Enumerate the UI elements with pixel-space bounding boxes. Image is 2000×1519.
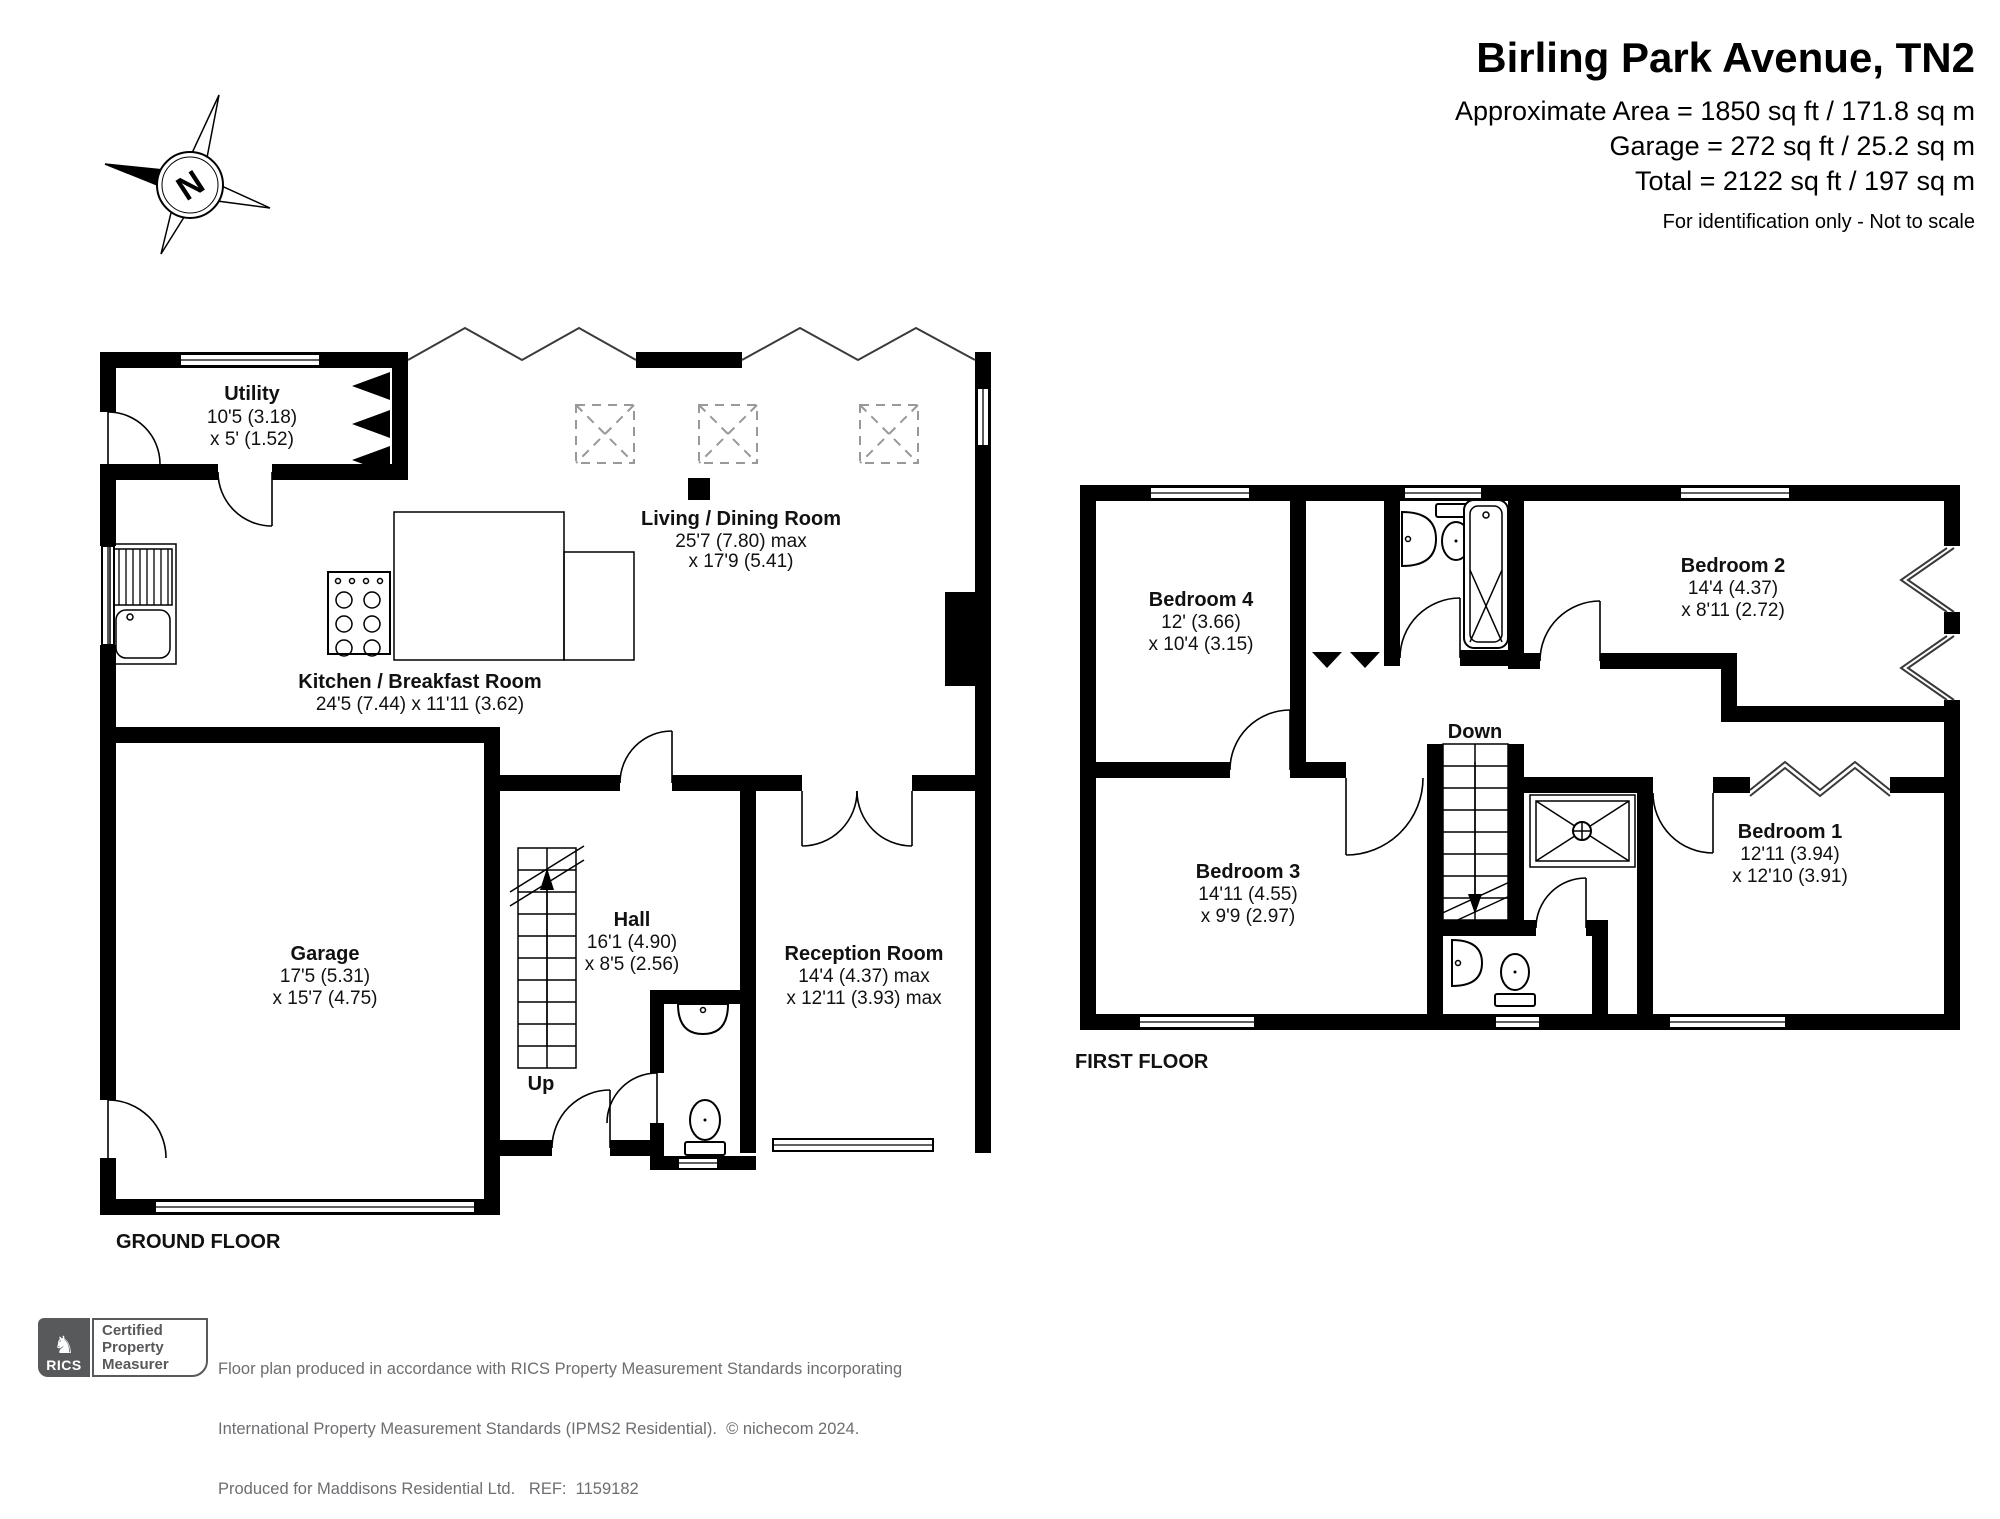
room-dim: x 8'11 (2.72) bbox=[1681, 600, 1785, 621]
room-dim: x 5' (1.52) bbox=[210, 429, 294, 450]
room-label-kitchen: Kitchen / Breakfast Room bbox=[298, 671, 541, 693]
area-summary: Approximate Area = 1850 sq ft / 171.8 sq… bbox=[1455, 94, 1975, 199]
room-label-bedroom2: Bedroom 2 bbox=[1681, 555, 1785, 577]
bay-window-icons bbox=[1750, 548, 1954, 796]
window-icon bbox=[1139, 1016, 1255, 1028]
page-title: Birling Park Avenue, TN2 bbox=[1455, 36, 1975, 80]
rics-wordmark: RICS bbox=[46, 1357, 81, 1377]
room-label-bedroom4: Bedroom 4 bbox=[1149, 589, 1254, 611]
airing-cupboard-icon bbox=[1530, 795, 1635, 867]
room-dim: x 8'5 (2.56) bbox=[585, 954, 679, 975]
stairs-down bbox=[1436, 744, 1514, 930]
kitchen-counter bbox=[394, 512, 634, 660]
cert-line: Measurer bbox=[102, 1356, 206, 1373]
garage-area: Garage = 272 sq ft / 25.2 sq m bbox=[1455, 129, 1975, 164]
folding-door-icon bbox=[352, 372, 390, 474]
window-icon bbox=[1669, 1016, 1786, 1028]
room-dim: 16'1 (4.90) bbox=[587, 932, 677, 953]
window-icon bbox=[1150, 487, 1250, 499]
window-icon bbox=[1495, 1016, 1540, 1028]
room-dim: 10'5 (3.18) bbox=[207, 407, 297, 428]
window-icon bbox=[773, 1139, 933, 1151]
window-icon bbox=[102, 546, 114, 645]
window-icon bbox=[1680, 487, 1790, 499]
ground-floor-doors bbox=[108, 372, 912, 1158]
first-floor-walls bbox=[1080, 485, 1960, 1030]
cert-line: Property bbox=[102, 1339, 206, 1356]
room-label-garage: Garage bbox=[291, 943, 360, 965]
room-label-bedroom3: Bedroom 3 bbox=[1196, 861, 1300, 883]
room-dim: 14'4 (4.37) max bbox=[798, 966, 930, 987]
approximate-area: Approximate Area = 1850 sq ft / 171.8 sq… bbox=[1455, 94, 1975, 129]
skylight-icons bbox=[576, 405, 918, 463]
first-floor-label: FIRST FLOOR bbox=[1075, 1051, 1209, 1073]
room-label-reception: Reception Room bbox=[785, 943, 944, 965]
bathtub-icon bbox=[1464, 500, 1508, 648]
stairs-down-label: Down bbox=[1448, 721, 1502, 743]
window-icon bbox=[180, 354, 320, 366]
room-dim: 24'5 (7.44) x 11'11 (3.62) bbox=[316, 694, 524, 715]
total-area: Total = 2122 sq ft / 197 sq m bbox=[1455, 164, 1975, 199]
room-dim: x 12'11 (3.93) max bbox=[786, 988, 942, 1009]
room-dim: x 17'9 (5.41) bbox=[688, 551, 793, 572]
disclaimer-line-3: Produced for Maddisons Residential Ltd. … bbox=[218, 1479, 902, 1499]
certified-property-measurer-badge: Certified Property Measurer bbox=[92, 1318, 208, 1377]
room-label-bedroom1: Bedroom 1 bbox=[1738, 821, 1842, 843]
room-dim: x 15'7 (4.75) bbox=[272, 988, 377, 1009]
room-dim: 14'11 (4.55) bbox=[1198, 884, 1297, 905]
folding-door-icon bbox=[1312, 652, 1380, 668]
window-icon bbox=[1404, 487, 1482, 499]
disclaimer-line-1: Floor plan produced in accordance with R… bbox=[218, 1359, 902, 1379]
disclaimer-text: Floor plan produced in accordance with R… bbox=[218, 1319, 902, 1519]
room-dim: x 9'9 (2.97) bbox=[1201, 906, 1295, 927]
rics-lion-icon: ♞ bbox=[53, 1335, 75, 1357]
window-icon bbox=[977, 388, 989, 446]
room-dim: 12' (3.66) bbox=[1161, 612, 1241, 633]
room-label-utility: Utility bbox=[224, 383, 280, 405]
stairs-up bbox=[510, 846, 584, 1068]
rics-logo: ♞ RICS bbox=[38, 1318, 90, 1377]
stove-icon bbox=[328, 572, 390, 656]
stairs-up-label: Up bbox=[528, 1073, 555, 1095]
room-dim: 25'7 (7.80) max bbox=[675, 531, 807, 552]
room-dim: 14'4 (4.37) bbox=[1688, 578, 1778, 599]
room-label-living: Living / Dining Room bbox=[641, 508, 841, 530]
disclaimer-line-2: International Property Measurement Stand… bbox=[218, 1419, 902, 1439]
garage-door-icon bbox=[155, 1201, 475, 1213]
room-label-hall: Hall bbox=[614, 909, 651, 931]
bathroom-sink-icon bbox=[1402, 512, 1436, 566]
cert-line: Certified bbox=[102, 1322, 206, 1339]
ensuite-sink-icon bbox=[1452, 940, 1482, 986]
wc-toilet-icon bbox=[685, 1100, 725, 1155]
wc-sink-icon bbox=[678, 1004, 728, 1034]
room-dim: x 10'4 (3.15) bbox=[1148, 634, 1253, 655]
ground-floor-label: GROUND FLOOR bbox=[116, 1231, 281, 1253]
room-dim: x 12'10 (3.91) bbox=[1732, 866, 1848, 887]
room-dim: 17'5 (5.31) bbox=[280, 966, 370, 987]
kitchen-sink-icon bbox=[110, 544, 176, 664]
ground-floor-labels: Utility 10'5 (3.18) x 5' (1.52) Living /… bbox=[116, 383, 943, 1253]
room-dim: 12'11 (3.94) bbox=[1740, 844, 1839, 865]
ensuite-toilet-icon bbox=[1495, 954, 1535, 1006]
header: Birling Park Avenue, TN2 Approximate Are… bbox=[1455, 36, 1975, 234]
compass-rose-icon: N bbox=[105, 95, 270, 254]
window-icon bbox=[678, 1158, 718, 1169]
first-floor-labels: Bedroom 4 12' (3.66) x 10'4 (3.15) Bedro… bbox=[1075, 555, 1848, 1073]
scale-note: For identification only - Not to scale bbox=[1455, 211, 1975, 234]
